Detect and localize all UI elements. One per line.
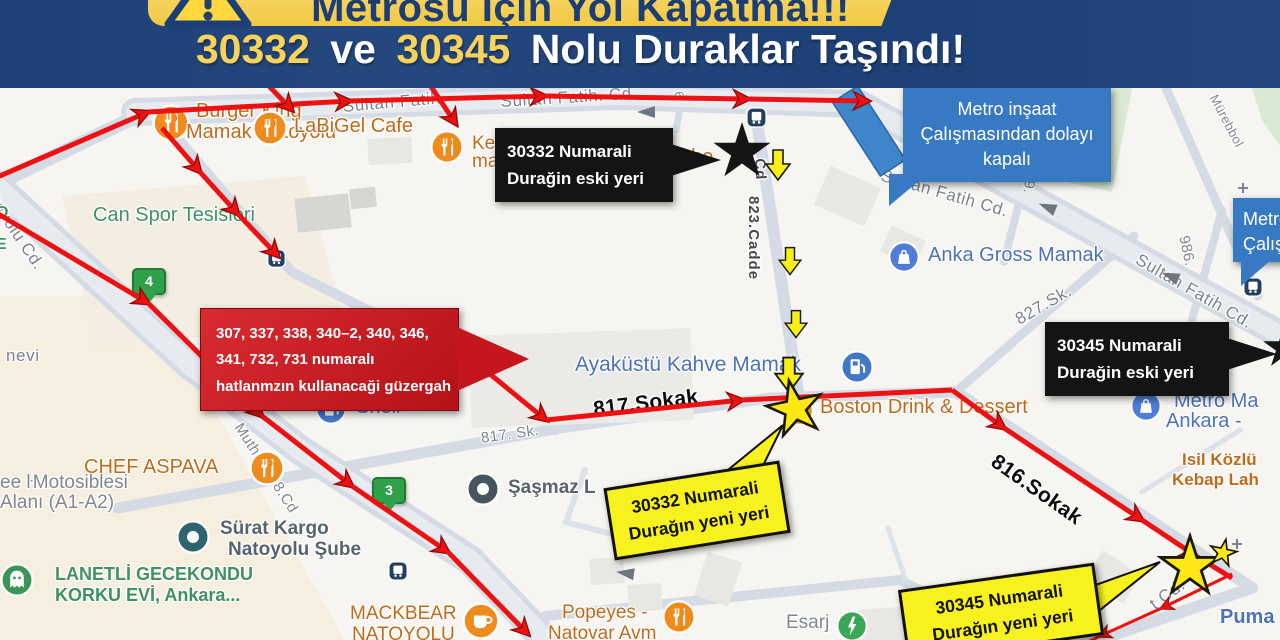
fuel-station-icon: [840, 350, 874, 384]
street-label: 817. Sk.: [480, 422, 540, 447]
street-annotation: 816.Sokak: [986, 450, 1086, 530]
street-label: 823.Cadde: [745, 196, 762, 280]
callout-line: Metro: [1243, 207, 1280, 232]
poi-label: Ayaküstü Kahve Mamak: [575, 353, 801, 377]
callout-route-info: 307, 337, 338, 340–2, 340, 346, 341, 732…: [200, 308, 459, 411]
poi-label: Puma: [1220, 606, 1274, 629]
callout-line: 30345 Numarali: [1057, 332, 1217, 359]
street-label: Mürebbol: [1207, 92, 1247, 150]
bus-stop-icon: [388, 561, 408, 581]
cargo-icon: [176, 520, 210, 554]
restaurant-icon: [252, 110, 288, 146]
street-label: latgyolu Cd.: [0, 182, 48, 274]
restaurant-icon: [662, 600, 696, 634]
poi-label: Natovar Avm: [548, 623, 656, 640]
callout-line: Çalışı: [1243, 232, 1280, 257]
street-label: Sultan Fatih: [342, 88, 441, 116]
callout-line: hatlanmzın kullanacaği güzergah: [216, 374, 458, 400]
poi-label: Can Spor Tesisleri: [93, 204, 255, 227]
poi-label: ee ŀMotosiblesi: [0, 472, 128, 494]
poi-label: LaBiGel Cafe: [294, 115, 413, 138]
subtitle-rest: Nolu Duraklar Taşındı!: [531, 26, 965, 72]
stop-number-30332: 30332: [196, 26, 310, 72]
poi-label: Alanı (A1-A2): [0, 492, 114, 514]
poi-label: E: [0, 236, 7, 254]
callout-line: Durağin eski yeri: [1057, 359, 1217, 386]
callout-new-stop-30345: 30345 Numarali Durağın yeni yeri: [898, 563, 1104, 640]
park-area: [1252, 88, 1280, 146]
poi-label: Anka Gross Mamak: [928, 244, 1104, 267]
restaurant-icon: [784, 396, 814, 426]
street-annotation: 817.Sokak: [592, 385, 700, 422]
charging-icon: [836, 610, 868, 640]
stop-number-30345: 30345: [396, 26, 510, 72]
restaurant-icon: [430, 130, 464, 164]
street-label: nevi: [6, 346, 40, 366]
haunted-house-icon: [0, 563, 34, 597]
poi-label: Kebap Lah: [1172, 470, 1259, 490]
callout-new-stop-30332: 30332 Numarali Durağın yeni yeri: [603, 461, 790, 560]
callout-old-stop-30345: 30345 Numarali Durağin eski yeri: [1045, 322, 1229, 396]
restaurant-icon: [249, 450, 285, 486]
route-pin: 3: [372, 477, 406, 504]
subtitle: 30332 ve 30345 Nolu Duraklar Taşındı!: [5, 26, 1165, 73]
street-label: Cd: [751, 158, 769, 181]
callout-line: 30332 Numarali: [507, 138, 661, 165]
street-label: 6: [671, 90, 687, 100]
route-pin: 4: [132, 268, 166, 295]
pin-number: 4: [145, 273, 153, 289]
poi-label: Popeyes -: [562, 602, 648, 624]
bus-stop-icon: [746, 107, 767, 128]
callout-line: 341, 732, 731 numaralı: [216, 347, 458, 373]
poi-label: KORKU EVİ, Ankara...: [55, 585, 240, 606]
callout-old-stop-30332: 30332 Numarali Durağin eski yeri: [495, 128, 673, 202]
poi-label: Natoyolu Şube: [228, 539, 361, 561]
bus-stop-icon: [267, 249, 286, 268]
callout-line: Çalışmasından dolayı: [911, 122, 1103, 147]
poi-label: Isil Közlü: [1182, 450, 1257, 470]
poi-label: Şaşmaz L: [508, 477, 596, 499]
callout-metro-closure-right: Metro Çalışı: [1233, 198, 1280, 262]
street-label: t Cd.: [1146, 575, 1189, 614]
pin-number: 3: [385, 482, 393, 498]
callout-metro-closure: Metro inşaat Çalışmasından dolayı kapalı: [903, 88, 1111, 182]
poi-label: Sürat Kargo: [220, 518, 329, 540]
poi-label: MACKBEAR: [350, 603, 457, 625]
road-closed-bar: [832, 86, 905, 176]
poi-label: O: [0, 204, 8, 222]
callout-line: 307, 337, 338, 340–2, 340, 346,: [216, 321, 458, 347]
shopping-icon: [888, 241, 920, 273]
poi-label: Ankara -: [1166, 410, 1242, 433]
callout-line: Metro inşaat: [911, 97, 1103, 122]
poi-label: NATOYOLU: [352, 624, 455, 640]
poi-label: LANETLİ GECEKONDU: [55, 564, 253, 585]
poi-label: Boston Drink & Dessert: [820, 396, 1028, 419]
subtitle-conjunction: ve: [330, 26, 376, 72]
callout-line: Durağin eski yeri: [507, 165, 661, 192]
announcement-header: Metrosu İçin Yol Kapatma!!! 30332 ve 303…: [0, 0, 1280, 88]
callout-line: kapalı: [911, 147, 1103, 172]
coffee-icon: [462, 602, 500, 640]
poi-label: Esarj: [786, 612, 829, 634]
place-dot-icon: [466, 472, 500, 506]
map-announcement-image: Sultan Fatih. Cd. Sultan Fatih Sultan Fa…: [0, 0, 1280, 640]
street-label: 986.: [1175, 234, 1198, 268]
restaurant-icon: [152, 104, 190, 142]
